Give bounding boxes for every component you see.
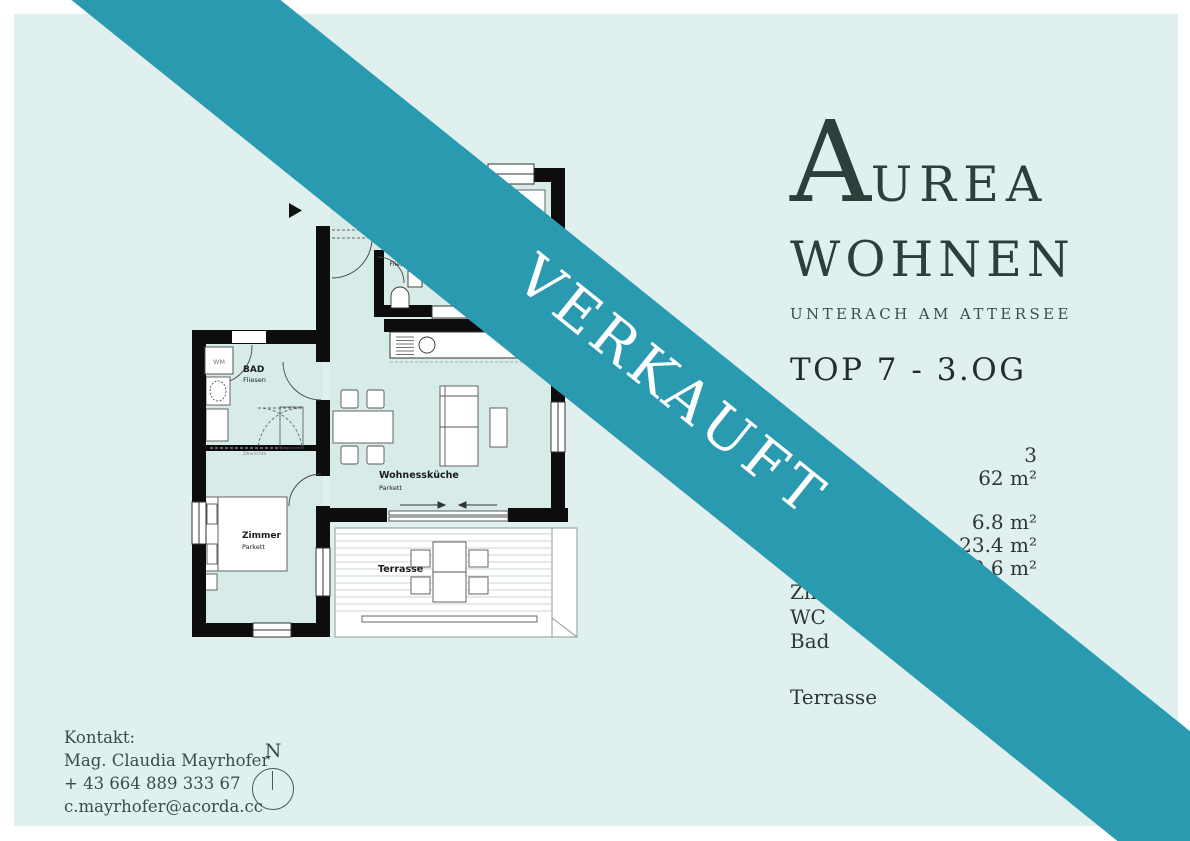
zimmer-floor-label: Parkett bbox=[242, 543, 265, 551]
bad-floor-label: Fliesen bbox=[243, 376, 266, 384]
compass-icon bbox=[252, 768, 294, 810]
zimmer-label: Zimmer bbox=[242, 531, 281, 541]
compass-north-label: N bbox=[243, 740, 303, 762]
spec-value: 23.4 m² bbox=[959, 534, 1037, 557]
spec-value: 62 m² bbox=[978, 467, 1037, 490]
brand-initial: A bbox=[790, 112, 871, 215]
contact-phone: + 43 664 889 333 67 bbox=[64, 772, 269, 795]
contact-email: c.mayrhofer@acorda.cc bbox=[64, 795, 269, 818]
wohnkueche-label: Wohnessküche bbox=[379, 470, 459, 481]
contact-heading: Kontakt: bbox=[64, 726, 269, 749]
washing-machine: WM bbox=[205, 347, 233, 374]
spec-value: 3 bbox=[1024, 444, 1037, 467]
contact-block: Kontakt: Mag. Claudia Mayrhofer + 43 664… bbox=[64, 726, 269, 818]
terrasse-label: Terrasse bbox=[378, 564, 423, 575]
wohnkueche-floor-label: Parkett bbox=[379, 484, 402, 492]
brand-rest: UREA bbox=[871, 156, 1048, 213]
spec-label: Bad bbox=[790, 630, 829, 653]
compass: N bbox=[243, 740, 303, 810]
brand-logo: AUREA WOHNEN UNTERACH AM ATTERSEE bbox=[790, 112, 1075, 323]
brand-name: AUREA bbox=[790, 112, 1075, 215]
spec-value: 6.8 m² bbox=[972, 511, 1037, 534]
unit-title: TOP 7 - 3.OG bbox=[790, 352, 1026, 388]
contact-name: Mag. Claudia Mayrhofer bbox=[64, 749, 269, 772]
entrance-arrow-icon bbox=[289, 203, 302, 218]
oberlichte-label: Oberlichte bbox=[243, 451, 267, 457]
flyer-sheet: WM BAD Fliesen Zimmer Parkett Wohnessküc… bbox=[0, 0, 1190, 841]
spec-label: Terrasse bbox=[790, 686, 877, 709]
brand-line2: WOHNEN bbox=[790, 231, 1075, 288]
brand-tagline: UNTERACH AM ATTERSEE bbox=[790, 305, 1075, 323]
wm-label: WM bbox=[213, 358, 225, 366]
spec-label: WC bbox=[790, 606, 826, 629]
compass-needle bbox=[272, 771, 273, 790]
bad-label: BAD bbox=[243, 365, 264, 375]
